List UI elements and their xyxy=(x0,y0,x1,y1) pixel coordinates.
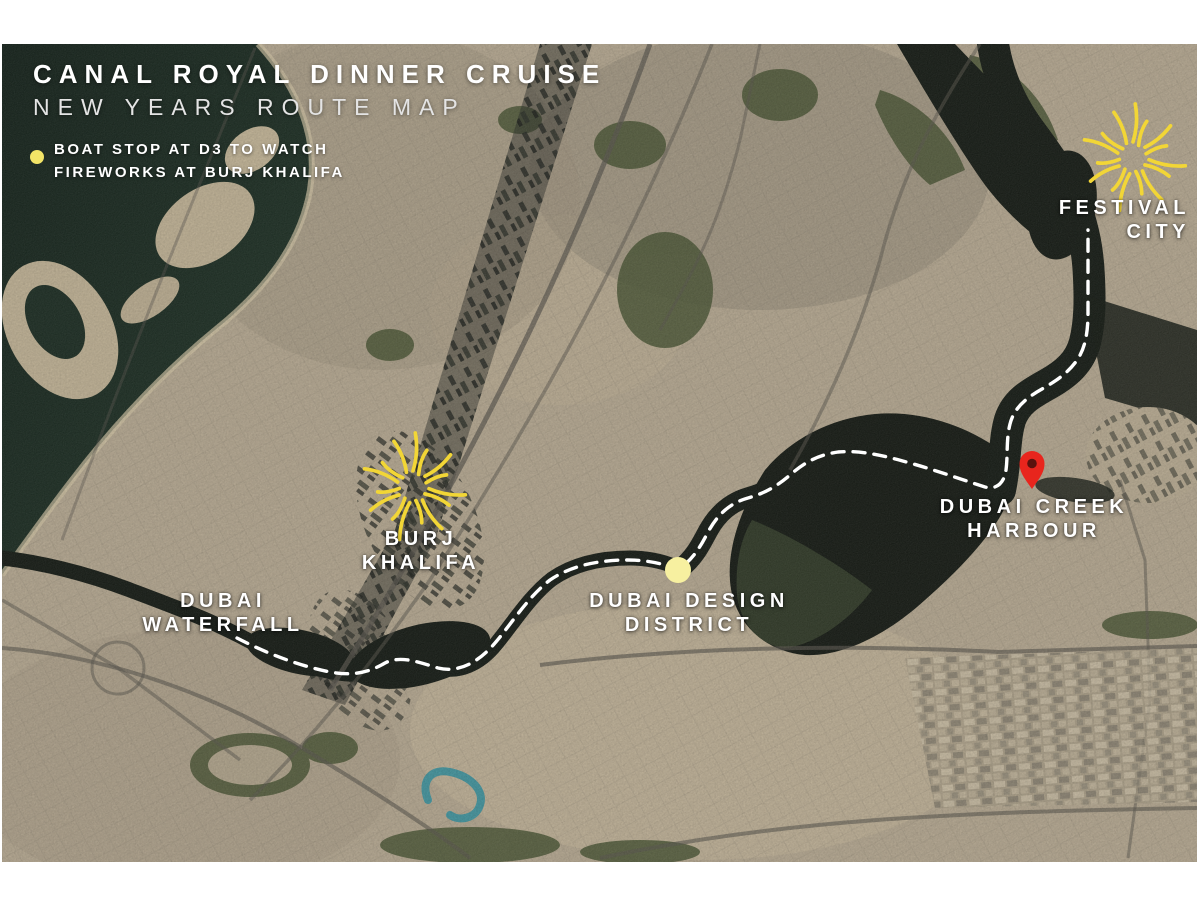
satellite-map xyxy=(2,44,1197,862)
route-map-poster: { "header": { "title": "CANAL ROYAL DINN… xyxy=(0,0,1200,900)
satellite-map-graphic xyxy=(2,44,1197,862)
boat-stop-marker xyxy=(665,557,691,583)
